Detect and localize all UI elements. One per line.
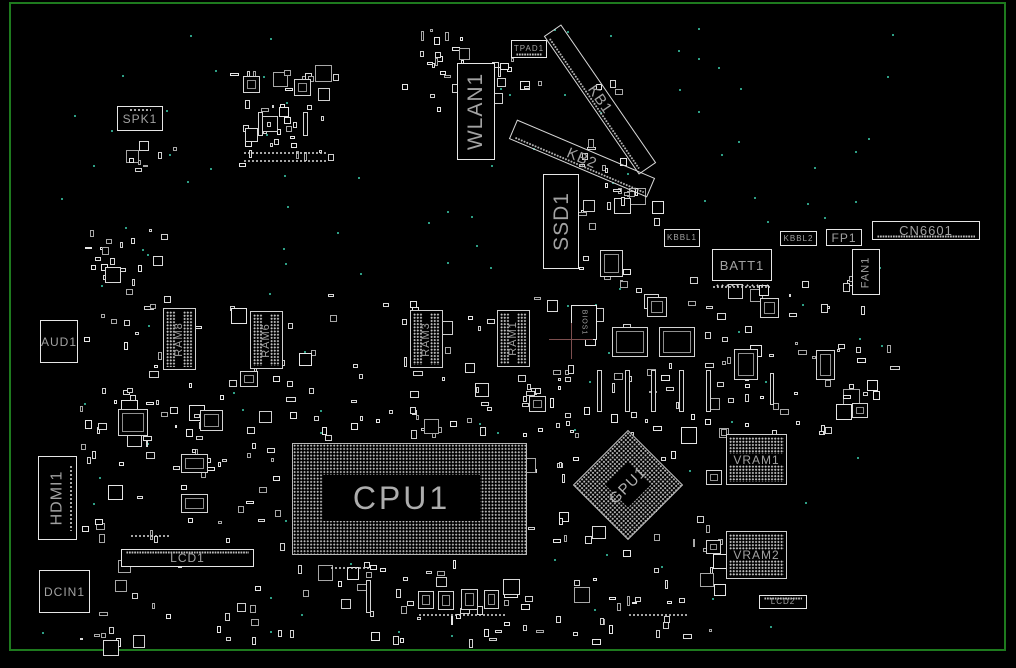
smd-part [468,316,474,320]
smd-part [153,256,163,266]
component-lcd1[interactable]: LCD1 [121,549,254,567]
ic-chip [181,454,208,473]
test-point [285,520,287,522]
smd-part [574,587,590,603]
test-point [689,470,691,472]
ic-chip-body [533,400,542,408]
component-tpad1[interactable]: TPAD1 [511,40,547,58]
ic-chip-body [185,458,204,469]
smd-part [376,419,380,423]
smd-part [426,571,432,574]
test-point [770,626,772,628]
smd-part [550,398,554,408]
smd-part [250,605,257,613]
smd-part [511,58,515,62]
ic-chip-body [488,594,495,605]
smd-part [124,320,129,326]
test-point [731,421,733,423]
smd-part [760,396,764,399]
smd-part [247,453,252,458]
ic-chip [734,349,758,380]
ic-chip [852,403,868,418]
component-fp1[interactable]: FP1 [826,229,862,246]
smd-part [562,474,565,483]
smd-part [393,636,399,645]
smd-part [152,603,155,609]
smd-part [158,352,162,360]
smd-part [109,627,114,634]
test-point [471,216,473,218]
smd-part [252,443,255,449]
smd-part [434,37,440,45]
smd-part [592,639,601,645]
bga-ball-grid [729,534,784,550]
component-bios1[interactable]: BIOS1 [571,305,597,340]
smd-part [417,617,421,620]
bga-ball-grid [729,437,784,454]
smd-part [290,630,294,638]
smd-part [798,350,807,355]
smd-part [81,444,86,450]
ic-chip [484,590,499,609]
ic-chip [600,250,623,277]
smd-part [80,406,83,413]
kbbl2-label: KBBL2 [784,235,814,243]
smd-part [396,589,401,598]
test-point [263,76,265,78]
vram1-label: VRAM1 [733,454,779,466]
smd-part [584,407,589,416]
cn6601-pin-hatch [877,235,975,238]
smd-part [272,105,275,108]
smd-part [94,634,101,637]
component-vram1[interactable]: VRAM1 [726,434,787,485]
smd-part [705,419,710,425]
smd-part [592,526,606,540]
smd-part [258,519,265,523]
smd-part [504,600,509,606]
smd-part [607,202,611,210]
smd-part [130,395,136,401]
smd-part [389,410,393,414]
smd-part [91,265,96,271]
smd-part [115,580,127,592]
smd-part [333,74,339,81]
smd-part [114,400,117,404]
smd-part [175,425,178,428]
smd-part [411,430,418,438]
smd-part [410,407,416,414]
slot-connector [303,112,308,136]
smd-part [709,629,712,632]
smd-part [270,143,274,147]
smd-part [789,313,797,317]
smd-part [620,281,629,288]
smd-part [665,580,669,589]
ic-chip-body [764,302,775,314]
smd-part [559,462,563,468]
test-point [451,635,453,637]
smd-part [400,638,404,643]
test-point [619,288,621,290]
smd-part [275,510,281,516]
smd-part [196,436,203,439]
smd-part [351,400,357,404]
smd-part [611,414,618,424]
test-point [855,151,857,153]
smd-part [126,289,133,295]
smd-part [98,423,107,430]
ic-chip-body [604,254,619,273]
smd-part [90,230,94,237]
smd-part [666,387,674,391]
smd-part [445,32,449,42]
smd-part [614,373,624,380]
smd-part [440,71,446,75]
test-point [428,222,430,224]
test-point [148,325,150,327]
tpad1-label: TPAD1 [514,45,544,53]
smd-part [867,380,879,392]
smd-part [138,160,142,165]
component-fan1[interactable]: FAN1 [852,249,880,295]
smd-part [623,269,631,275]
spk1-label: SPK1 [123,113,158,125]
smd-part [120,242,123,248]
smd-part [503,579,520,596]
smd-part [353,364,359,368]
smd-part [661,375,670,381]
test-point [287,206,289,208]
ic-chip-body [710,474,718,481]
smd-part [717,313,727,319]
bios1-label: BIOS1 [581,310,588,336]
smd-part [612,383,615,392]
smd-part [226,538,231,543]
smd-part [843,395,851,399]
smd-part [873,391,879,400]
test-point [765,381,767,383]
test-point [84,403,86,405]
test-point [698,58,700,60]
smd-part [706,525,710,533]
component-kbbl1[interactable]: KBBL1 [664,229,700,247]
smd-part [789,294,792,297]
ic-chip [760,298,779,318]
test-point [99,477,101,479]
component-vram2[interactable]: VRAM2 [726,531,787,579]
component-dcin1[interactable]: DCIN1 [39,570,90,613]
ic-chip [647,297,667,317]
test-point [447,211,449,213]
ic-chip [706,540,721,554]
test-point [42,632,44,634]
smd-part [857,358,866,363]
smd-part [139,141,149,151]
smd-part [573,632,578,636]
smd-part [794,392,798,396]
smd-part [218,462,222,467]
wlan1-label: WLAN1 [466,73,487,150]
smd-part [92,451,96,459]
smd-part [286,126,293,132]
slot-connector [770,373,774,405]
smd-part [132,279,135,287]
smd-part [527,384,531,391]
smd-part [435,58,439,66]
test-point [125,227,127,229]
smd-part [309,388,314,394]
smd-part [556,616,561,623]
test-point [554,559,556,561]
smd-part [108,485,123,500]
smd-part [143,436,153,441]
ic-chip-body [298,83,307,92]
smd-part [438,427,443,432]
ic-chip [118,409,148,436]
ic-chip [243,76,260,93]
smd-part [259,487,267,492]
smd-part [444,75,451,78]
smd-part [654,534,660,541]
smd-part [246,501,254,504]
component-ram8[interactable]: RAM8 [163,308,196,370]
test-point [704,200,706,202]
smd-part [652,201,665,214]
smd-part [497,78,507,88]
smd-part [325,435,332,442]
smd-part [524,86,529,89]
smd-part [575,433,579,438]
board-canvas[interactable]: SPK1TPAD1WLAN1KB1KB2SSD1KBBL1BATT1KBBL2F… [0,0,1016,668]
test-point [610,35,612,37]
component-aud1[interactable]: AUD1 [40,320,78,363]
smd-part [523,433,527,437]
test-point [269,293,271,295]
ic-chip-body [244,375,254,383]
test-point [270,597,272,599]
smd-part [284,117,291,124]
smd-part [654,218,661,226]
smd-part [173,466,180,470]
ic-chip-body [710,544,717,550]
ic-chip-body [663,331,691,353]
smd-part [459,48,471,60]
smd-part [102,388,106,394]
smd-part [489,638,497,641]
component-ram6[interactable]: RAM6 [250,311,283,369]
component-batt1[interactable]: BATT1 [712,249,772,281]
test-point [101,285,103,287]
smd-part [231,308,247,324]
smd-part [445,347,452,354]
ic-chip-body [122,413,144,432]
smd-part [636,288,642,293]
test-point [169,154,171,156]
test-point [574,429,576,431]
smd-part [189,383,193,389]
pad-row [330,566,370,570]
smd-part [132,593,138,599]
smd-part [293,122,297,128]
cpu1-label: CPU1 [353,482,450,514]
test-point [887,76,889,78]
ram8-label: RAM8 [174,322,185,357]
smd-part [518,375,526,382]
test-point [476,245,478,247]
smd-part [303,590,309,598]
smd-part [127,388,134,393]
smd-part [124,342,128,351]
component-spk1[interactable]: SPK1 [117,106,163,131]
smd-part [267,448,276,453]
smd-part [683,634,693,640]
smd-part [600,618,604,625]
pad-row [418,613,506,617]
component-hdmi1[interactable]: HDMI1 [38,456,77,540]
smd-part [321,116,324,121]
test-point [270,631,272,633]
smd-part [697,516,704,524]
smd-part [523,396,527,402]
ic-chip-body [738,353,754,376]
smd-part [82,526,89,532]
smd-part [566,421,570,426]
smd-part [714,584,726,596]
smd-part [589,223,596,230]
test-point [567,305,569,307]
smd-part [821,304,828,313]
smd-part [863,392,868,396]
smd-part [568,365,575,375]
lcd1-pin-hatch [126,551,249,554]
smd-part [245,128,259,142]
smd-part [780,409,789,416]
smd-part [146,441,149,447]
smd-part [146,452,156,459]
smd-part [706,306,713,310]
smd-part [245,100,250,109]
smd-part [154,365,158,368]
smd-part [239,163,246,167]
smd-part [623,550,631,557]
smd-part [610,80,616,88]
smd-part [705,332,711,339]
test-point [698,28,700,30]
smd-part [565,377,572,382]
smd-part [85,420,92,429]
test-point [490,267,492,269]
smd-part [825,427,832,434]
smd-part [158,152,162,159]
smd-part [667,601,672,604]
ic-chip [706,470,722,485]
slot-connector [366,580,371,613]
smd-part [627,596,630,605]
smd-part [279,107,290,118]
component-cpu1[interactable]: CPU1 [292,443,527,555]
slot-connector [597,370,602,412]
smd-part [661,457,666,461]
slot-connector [258,112,263,136]
smd-part [819,431,824,435]
test-point [398,631,400,633]
smd-part [271,458,274,463]
smd-part [745,384,750,388]
test-point [814,167,816,169]
smd-part [225,613,230,621]
ic-chip [816,350,835,380]
smd-part [442,377,445,381]
component-cn6601[interactable]: CN6601 [872,221,980,240]
test-point [857,457,859,459]
test-point [93,165,95,167]
smd-part [621,197,625,206]
smd-part [186,429,193,438]
component-lcd2[interactable]: LCD2 [759,595,807,609]
test-point [166,110,168,112]
smd-part [138,265,143,272]
smd-part [173,147,177,151]
smd-part [311,350,315,357]
smd-part [728,398,735,403]
component-ram3[interactable]: RAM3 [410,310,443,368]
component-wlan1[interactable]: WLAN1 [457,63,495,160]
smd-part [247,427,254,434]
smd-part [613,189,621,193]
smd-part [538,428,543,432]
smd-part [237,603,246,612]
component-ram1[interactable]: RAM1 [497,310,530,367]
slot-connector [706,370,711,412]
smd-part [267,122,272,127]
smd-part [838,344,845,350]
smd-part [487,407,492,411]
smd-part [274,139,279,144]
smd-part [691,414,696,420]
smd-part [284,70,291,77]
smd-part [103,640,119,656]
smd-part [451,616,454,625]
component-ssd1[interactable]: SSD1 [543,174,579,269]
smd-part [535,388,541,394]
ic-chip-body [651,301,663,313]
smd-part [856,347,861,353]
smd-part [574,580,580,586]
component-kbbl2[interactable]: KBBL2 [780,231,817,246]
smd-part [217,626,221,633]
smd-part [99,534,105,542]
smd-part [849,384,855,389]
test-point [698,111,700,113]
test-point [606,554,608,556]
smd-part [565,413,571,418]
smd-part [137,496,143,499]
pad-row [243,151,328,155]
test-point [594,609,596,611]
test-point [892,34,894,36]
smd-part [101,314,105,318]
smd-part [420,51,424,57]
test-point [805,502,807,504]
smd-part [700,573,715,588]
test-point [802,304,804,306]
smd-part [500,63,509,71]
smd-part [298,565,303,574]
smd-part [631,412,637,418]
test-point [824,217,826,219]
smd-part [585,536,592,543]
